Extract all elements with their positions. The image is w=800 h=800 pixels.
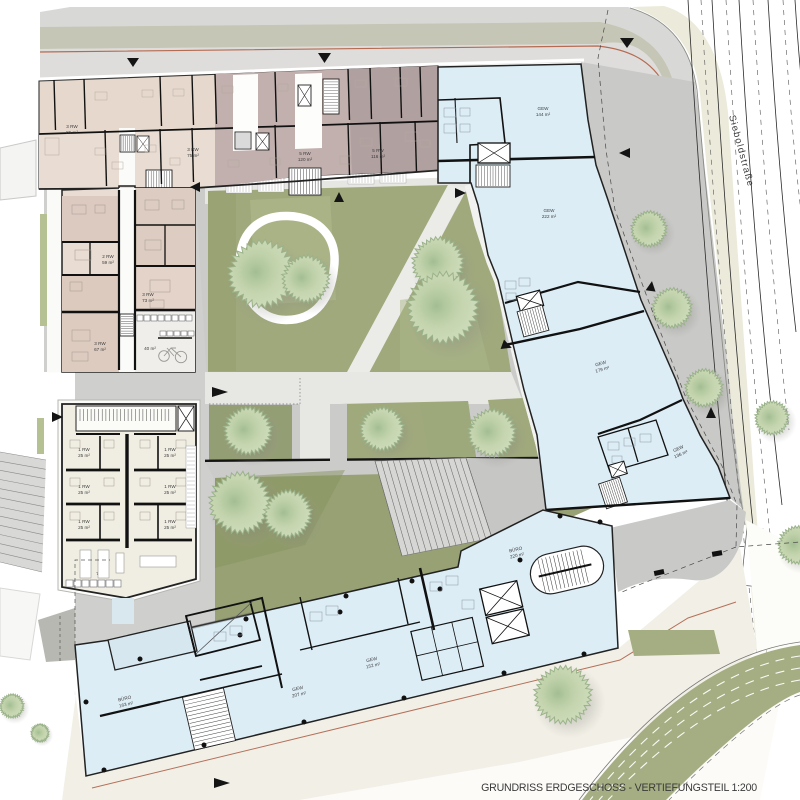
- svg-text:3 RW: 3 RW: [187, 147, 199, 152]
- svg-text:59 m²: 59 m²: [102, 260, 114, 265]
- svg-text:1 RW: 1 RW: [164, 519, 176, 524]
- svg-text:3 RW: 3 RW: [142, 292, 154, 297]
- svg-text:25 m²: 25 m²: [78, 525, 90, 530]
- svg-text:25 m²: 25 m²: [78, 453, 90, 458]
- svg-text:3 RW: 3 RW: [66, 124, 78, 129]
- svg-text:25 m²: 25 m²: [164, 453, 176, 458]
- svg-text:40 m²: 40 m²: [144, 346, 156, 351]
- svg-text:25 m²: 25 m²: [78, 490, 90, 495]
- svg-text:1 RW: 1 RW: [164, 484, 176, 489]
- svg-text:222 m²: 222 m²: [542, 214, 557, 219]
- svg-text:86 m²: 86 m²: [66, 130, 78, 135]
- svg-text:144 m²: 144 m²: [536, 112, 551, 117]
- svg-text:25 m²: 25 m²: [164, 525, 176, 530]
- svg-text:GEW: GEW: [544, 208, 556, 213]
- svg-text:2 RW: 2 RW: [102, 254, 114, 259]
- svg-text:GRUNDRISS ERDGESCHOSS - VERTIE: GRUNDRISS ERDGESCHOSS - VERTIEFUNGSTEIL …: [481, 782, 757, 794]
- svg-text:120 m²: 120 m²: [298, 157, 313, 162]
- svg-text:1 RW: 1 RW: [164, 447, 176, 452]
- svg-text:75 m²: 75 m²: [187, 153, 199, 158]
- svg-text:116 m²: 116 m²: [371, 154, 385, 159]
- svg-text:3 RW: 3 RW: [94, 341, 106, 346]
- svg-text:25 m²: 25 m²: [164, 490, 176, 495]
- svg-text:GEW: GEW: [538, 106, 550, 111]
- svg-text:67 m²: 67 m²: [94, 347, 106, 352]
- svg-text:73 m²: 73 m²: [142, 298, 154, 303]
- svg-text:5 RW: 5 RW: [299, 151, 311, 156]
- svg-text:5 RW: 5 RW: [372, 148, 384, 153]
